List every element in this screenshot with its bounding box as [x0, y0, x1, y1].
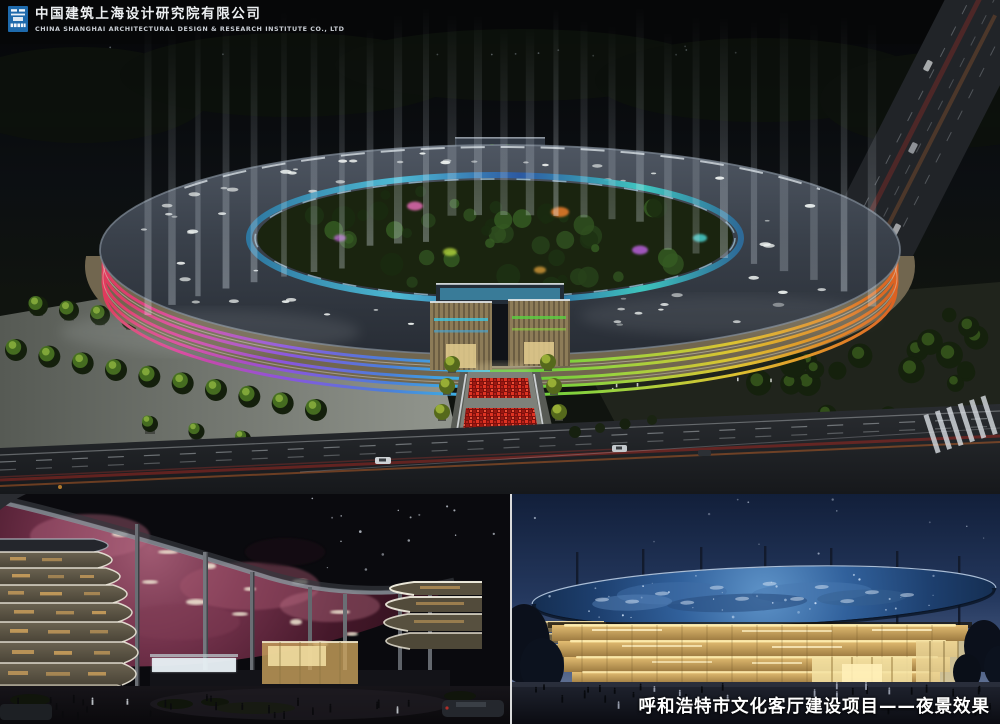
red-pattern-patch	[468, 378, 531, 398]
aerial-scene-canvas	[0, 0, 1000, 494]
br-building-bands	[548, 622, 972, 684]
company-logo-icon	[8, 6, 28, 32]
aerial-night-view: 中国建筑上海设计研究院有限公司 CHINA SHANGHAI ARCHITECT…	[0, 0, 1000, 494]
bl-far-wing	[384, 582, 482, 649]
canopy-scene-canvas	[0, 494, 510, 724]
courtyard-garden	[257, 180, 733, 296]
elevation-night-view: 呼和浩特市文化客厅建设项目——夜景效果	[512, 494, 1000, 724]
elevation-scene-canvas	[512, 494, 1000, 724]
presentation-board: 中国建筑上海设计研究院有限公司 CHINA SHANGHAI ARCHITECT…	[0, 0, 1000, 724]
company-name-en: CHINA SHANGHAI ARCHITECTURAL DESIGN & RE…	[35, 25, 344, 33]
canopy-closeup-view	[0, 494, 510, 724]
company-logo: 中国建筑上海设计研究院有限公司 CHINA SHANGHAI ARCHITECT…	[8, 6, 344, 33]
company-name-cn: 中国建筑上海设计研究院有限公司	[35, 6, 344, 23]
project-caption: 呼和浩特市文化客厅建设项目——夜景效果	[639, 693, 991, 718]
